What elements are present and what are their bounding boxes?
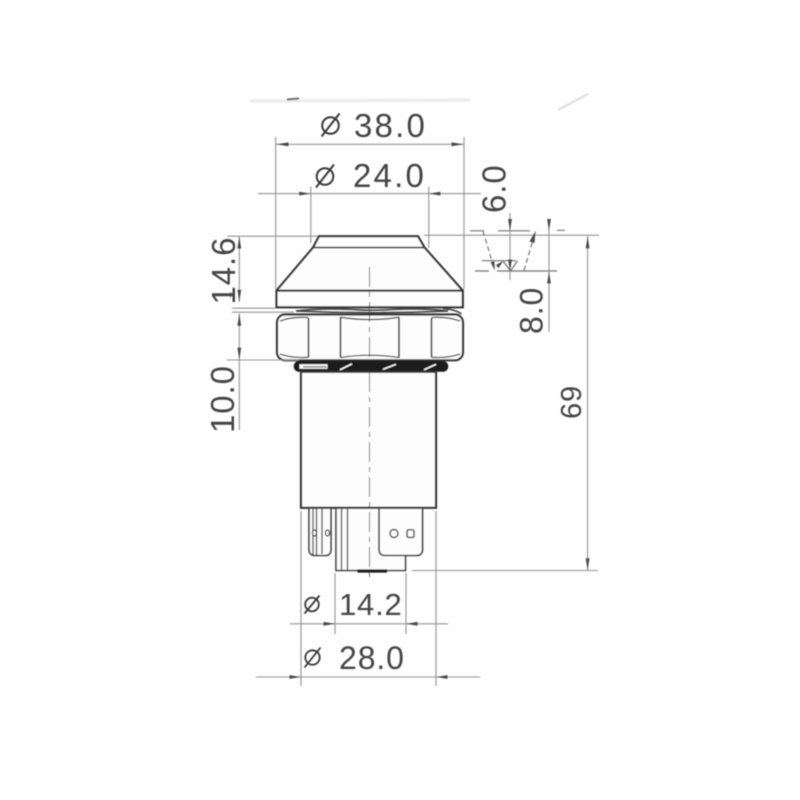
svg-text:38.0: 38.0: [354, 107, 427, 144]
svg-text:8.0: 8.0: [514, 287, 550, 334]
svg-text:69: 69: [556, 385, 588, 419]
svg-text:28.0: 28.0: [339, 640, 405, 676]
svg-text:14.6: 14.6: [205, 237, 242, 305]
svg-text:6.0: 6.0: [476, 164, 513, 213]
svg-text:14.2: 14.2: [339, 587, 403, 622]
svg-text:24.0: 24.0: [353, 157, 426, 194]
svg-text:10.0: 10.0: [204, 365, 241, 433]
